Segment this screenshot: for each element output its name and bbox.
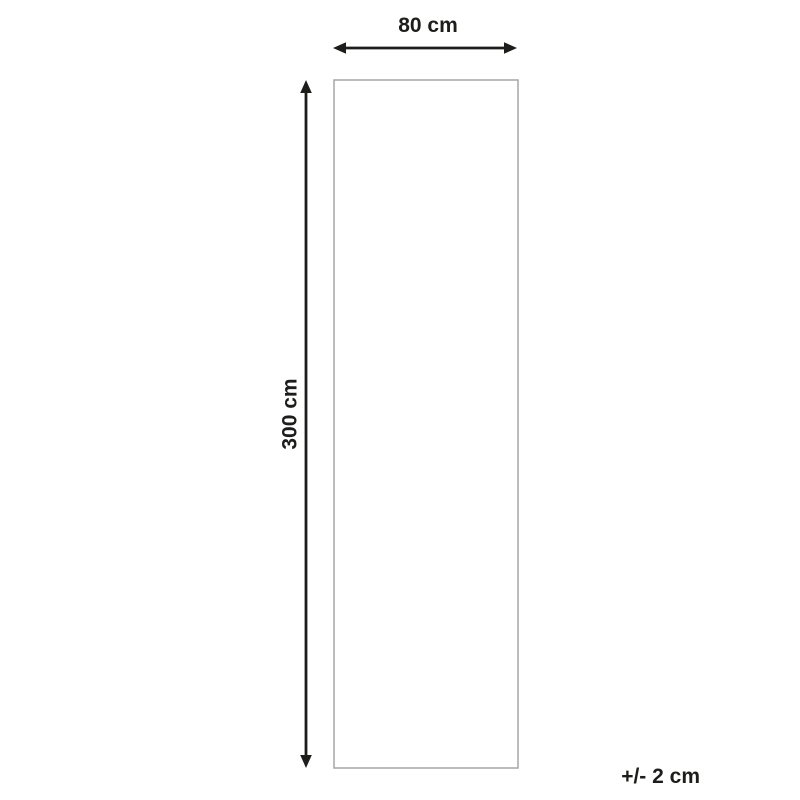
height-arrow-bottom-head-icon xyxy=(300,755,312,768)
product-outline-rect xyxy=(334,80,518,768)
width-arrow-left-head-icon xyxy=(333,42,346,54)
height-dimension-label: 300 cm xyxy=(280,378,301,449)
dimension-diagram: 80 cm 300 cm +/- 2 cm xyxy=(0,0,800,800)
width-dimension-arrow xyxy=(333,42,517,54)
tolerance-label: +/- 2 cm xyxy=(621,766,700,787)
diagram-canvas xyxy=(0,0,800,800)
height-dimension-arrow xyxy=(300,80,312,768)
width-dimension-label: 80 cm xyxy=(398,15,458,36)
height-arrow-top-head-icon xyxy=(300,80,312,93)
width-arrow-right-head-icon xyxy=(504,42,517,54)
